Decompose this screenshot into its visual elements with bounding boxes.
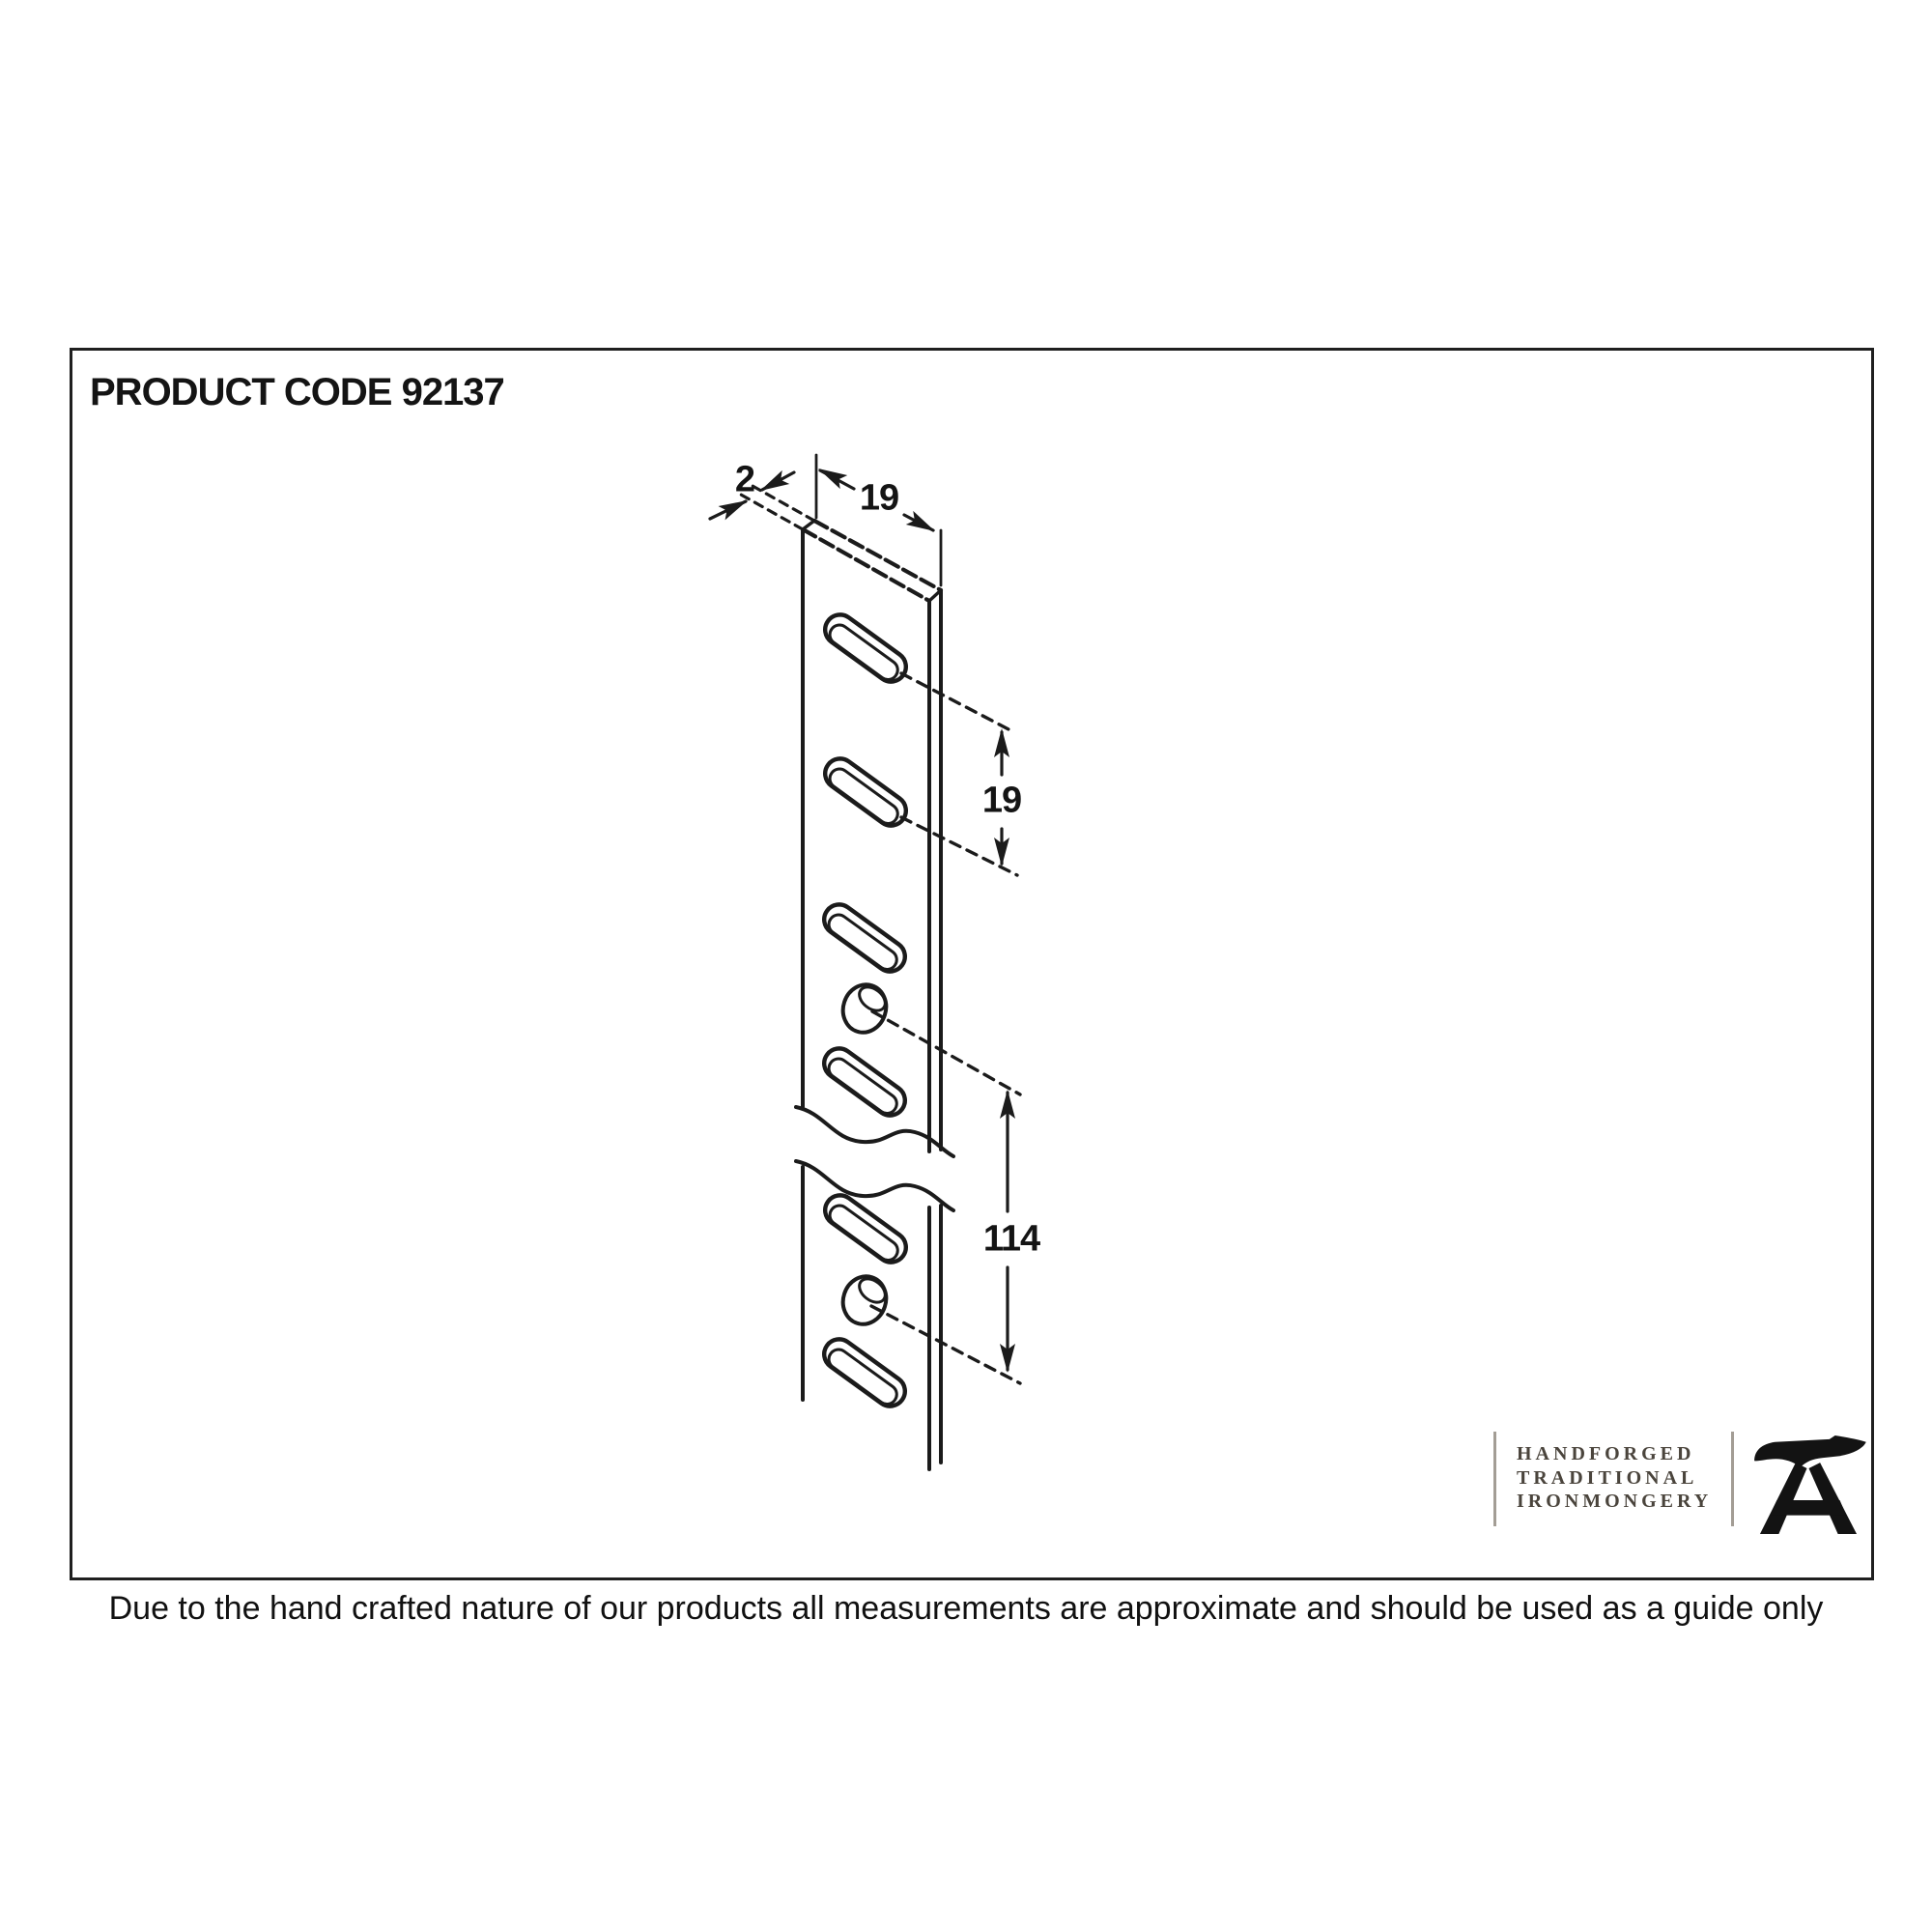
dim-label-slot-spacing: 19 xyxy=(982,781,1021,822)
slot-hole-4 xyxy=(818,1042,911,1122)
logo-left-rule xyxy=(1493,1432,1496,1526)
anvil-top xyxy=(1754,1435,1866,1467)
anvil-crossbar xyxy=(1771,1500,1847,1516)
slot-hole-3 xyxy=(818,898,911,978)
arrowhead xyxy=(814,462,847,489)
spacing-leader-top xyxy=(901,673,1012,731)
footer-disclaimer: Due to the hand crafted nature of our pr… xyxy=(0,1590,1932,1628)
length-leader-bottom xyxy=(871,1306,1020,1383)
round-hole-1 xyxy=(837,979,892,1037)
round-hole-2 xyxy=(837,1270,892,1329)
logo-line-1: HANDFORGED xyxy=(1517,1442,1712,1466)
logo-line-2: TRADITIONAL xyxy=(1517,1466,1712,1491)
dimension-width xyxy=(814,455,941,585)
anvil-left-leg xyxy=(1760,1463,1807,1534)
logo-right-rule xyxy=(1731,1432,1734,1526)
dimension-length xyxy=(871,1011,1020,1383)
technical-drawing xyxy=(0,0,1932,1932)
break-line-bottom xyxy=(796,1161,953,1210)
dim-label-width: 19 xyxy=(860,478,898,520)
bar-top-left-corner xyxy=(803,521,814,529)
dim-label-length: 114 xyxy=(983,1219,1039,1261)
bar-top-front-edge xyxy=(803,529,929,601)
slots xyxy=(818,609,912,1412)
slot-hole-1 xyxy=(819,609,912,688)
dim-label-thickness: 2 xyxy=(735,460,754,501)
arrowhead xyxy=(756,470,789,497)
dimension-slot-spacing xyxy=(901,673,1017,875)
slot-hole-2 xyxy=(819,753,912,832)
slot-hole-5 xyxy=(819,1189,912,1268)
bar-top-back-edge xyxy=(814,521,941,590)
anvil-icon xyxy=(1747,1435,1869,1534)
brand-logo: HANDFORGED TRADITIONAL IRONMONGERY xyxy=(1493,1432,1869,1534)
anvil-right-leg xyxy=(1809,1463,1858,1534)
logo-line-3: IRONMONGERY xyxy=(1517,1490,1712,1514)
arrowhead xyxy=(906,511,939,538)
slot-hole-6 xyxy=(818,1333,911,1412)
dimension-thickness xyxy=(710,470,814,529)
length-leader-top xyxy=(872,1011,1020,1094)
logo-text: HANDFORGED TRADITIONAL IRONMONGERY xyxy=(1517,1442,1712,1514)
